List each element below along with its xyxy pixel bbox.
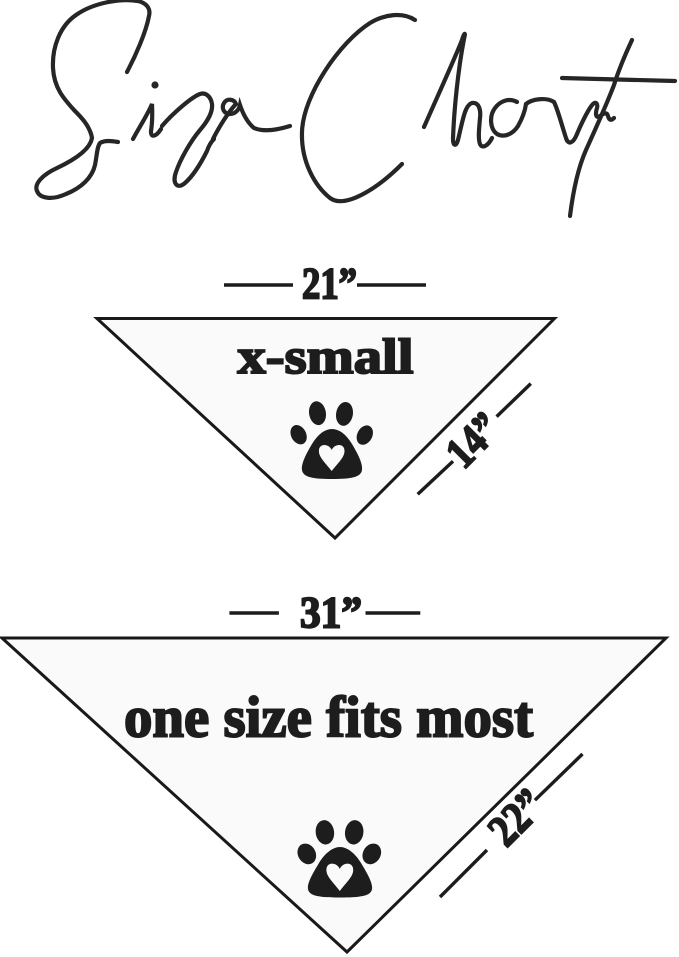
svg-text:x-small: x-small bbox=[238, 328, 414, 384]
svg-text:21”: 21” bbox=[302, 259, 357, 308]
svg-text:31”: 31” bbox=[300, 588, 362, 637]
svg-text:one size fits most: one size fits most bbox=[124, 685, 534, 750]
